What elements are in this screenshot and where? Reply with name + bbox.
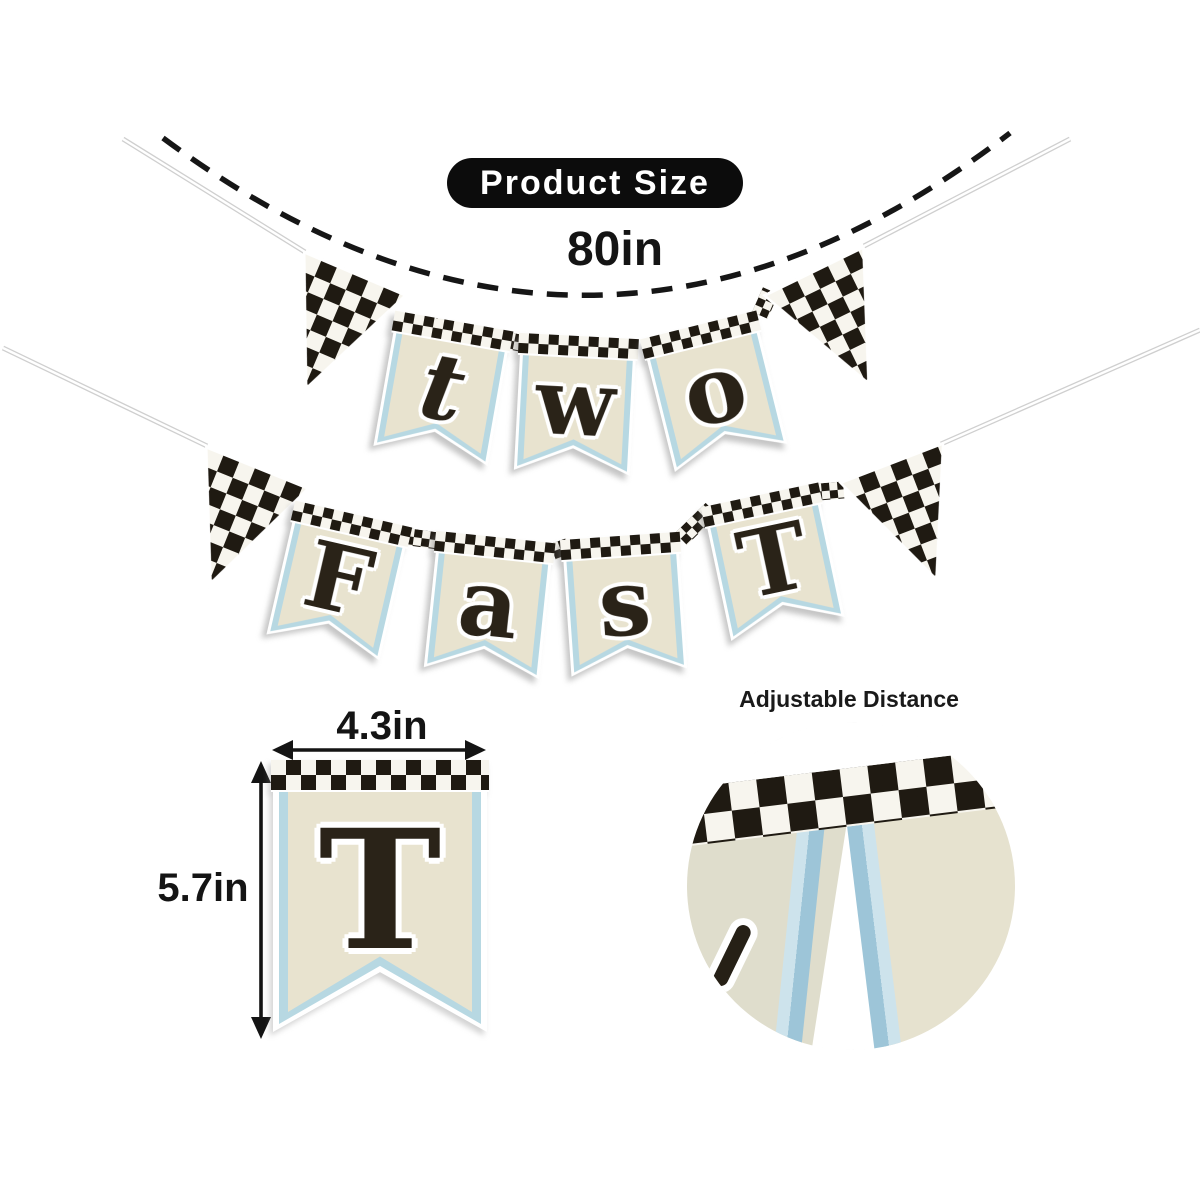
checkered-band [271,760,489,792]
checkered-pennant [762,245,922,414]
letter-pennant-w: w [514,334,637,476]
banner-length-label: 80in [535,222,695,277]
adjustable-distance-label: Adjustable Distance [716,686,982,713]
dimension-flag-letter: T [273,808,487,973]
product-diagram: Product Size 80in twoFasT T 4.3in 5.7in … [0,0,1200,1200]
letter-pennant-F: F [266,502,410,661]
pennant-letter: a [426,552,551,656]
pennant-letter: s [563,553,685,653]
letter-pennant-t: t [373,312,511,466]
letter-pennant-T: T [703,484,845,641]
pennant-letter: w [515,354,636,452]
product-size-badge-label: Product Size [480,164,710,203]
checkered-pattern [843,445,985,595]
letter-pennant-s: s [562,533,687,677]
flag-height-label: 5.7in [128,866,278,911]
detail-zoom-circle [687,722,1015,1050]
pennant-letter: t [378,332,508,443]
product-size-badge: Product Size [447,158,743,208]
letter-pennant-a: a [424,532,554,679]
flag-width-label: 4.3in [302,704,462,749]
checkered-pennant [838,441,992,605]
dimension-flag: T [273,760,487,1032]
letter-pennant-o: o [642,312,787,472]
checkered-pattern [767,249,915,403]
checkered-pattern [259,254,403,406]
